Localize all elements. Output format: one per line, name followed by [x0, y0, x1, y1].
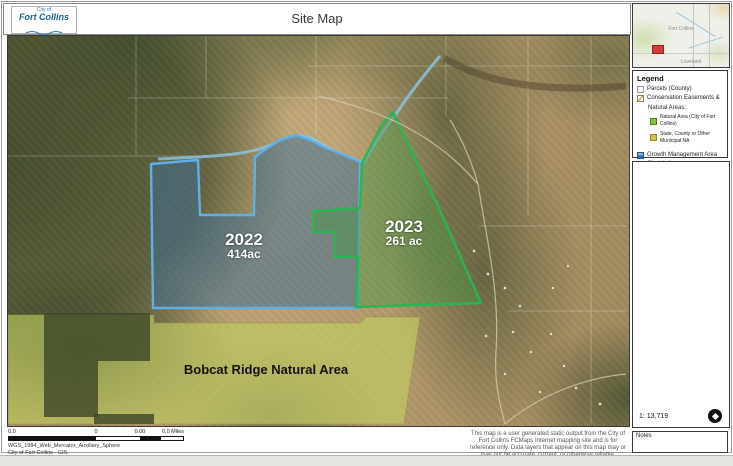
legend-panel: Legend Parcels (County) Conservation Eas…	[632, 70, 728, 158]
logo-name-text: Fort Collins	[12, 13, 76, 22]
inset-road	[693, 4, 694, 67]
parcels-swatch-icon	[637, 86, 644, 93]
legend-item-label: Parcels (County)	[647, 86, 692, 93]
canyon-shading	[444, 58, 626, 88]
easement-2023-acreage: 261 ac	[385, 235, 423, 248]
legend-item-label: Conservation Easements &	[647, 95, 720, 102]
scale-label: 0.0	[8, 429, 16, 435]
scale-bar: 0.0 0 0.00 0.0 Miles	[8, 429, 184, 441]
window-bottom-strip	[0, 455, 733, 466]
map-export-page: Site Map City of Fort Collins	[0, 0, 733, 466]
inset-town-label: Loveland	[681, 59, 701, 65]
legend-item-label: State, County or Other Municipal NA	[660, 131, 723, 145]
legend-item-natural-area-other: State, County or Other Municipal NA	[650, 131, 723, 145]
growth-management-swatch-icon	[637, 152, 644, 159]
projection-text: WGS_1984_Web_Mercator_Auxiliary_Sphere	[8, 443, 120, 450]
easement-2022-acreage: 414ac	[225, 248, 263, 261]
legend-item-easements: Conservation Easements &	[637, 95, 723, 102]
natural-area-label: Bobcat Ridge Natural Area	[184, 362, 348, 377]
natural-area-swatch-icon	[650, 118, 657, 125]
fort-collins-logo: City of Fort Collins	[11, 6, 77, 34]
legend-item-parcels: Parcels (County)	[637, 86, 723, 93]
north-arrow-icon	[708, 409, 722, 423]
easement-2023-year: 2023	[385, 219, 423, 235]
notes-label: Notes	[636, 433, 724, 439]
inset-road	[633, 53, 729, 54]
scale-label: 0.00	[135, 429, 146, 435]
scale-bar-labels: 0.0 0 0.00 0.0 Miles	[8, 429, 184, 436]
page-title: Site Map	[4, 4, 630, 34]
scale-label: 0.0 Miles	[162, 429, 184, 435]
legend-item-label: Natural Areas:	[648, 105, 686, 112]
inset-city-label: Fort Collins	[633, 26, 729, 32]
legend-title: Legend	[637, 74, 723, 83]
map-surround-panel: 1: 13,719	[632, 161, 730, 428]
easement-2022-year: 2022	[225, 232, 263, 248]
legend-item-label: Growth Management Area	[647, 152, 717, 159]
other-natural-area-swatch-icon	[650, 134, 657, 141]
scale-label: 0	[94, 429, 97, 435]
easement-2023-label: 2023 261 ac	[385, 219, 423, 248]
notes-panel: Notes	[632, 431, 728, 453]
legend-item-label: Natural Area (City of Fort Collins)	[660, 114, 723, 128]
legend-group-natural-areas: Natural Areas:	[637, 105, 723, 112]
inset-road	[709, 4, 710, 67]
legend-item-gma: Growth Management Area	[637, 152, 723, 159]
easement-swatch-icon	[637, 95, 644, 102]
header-bar: Site Map City of Fort Collins	[3, 3, 631, 35]
location-marker-icon	[652, 45, 664, 54]
site-map: 2022 414ac 2023 261 ac Bobcat Ridge Natu…	[7, 35, 630, 427]
scale-bar-segments	[8, 436, 184, 441]
easement-2022-label: 2022 414ac	[225, 232, 263, 261]
overview-map: Fort Collins Loveland	[632, 3, 730, 68]
legend-item-natural-area-city: Natural Area (City of Fort Collins)	[650, 114, 723, 128]
map-scale-text: 1: 13,719	[639, 413, 668, 420]
